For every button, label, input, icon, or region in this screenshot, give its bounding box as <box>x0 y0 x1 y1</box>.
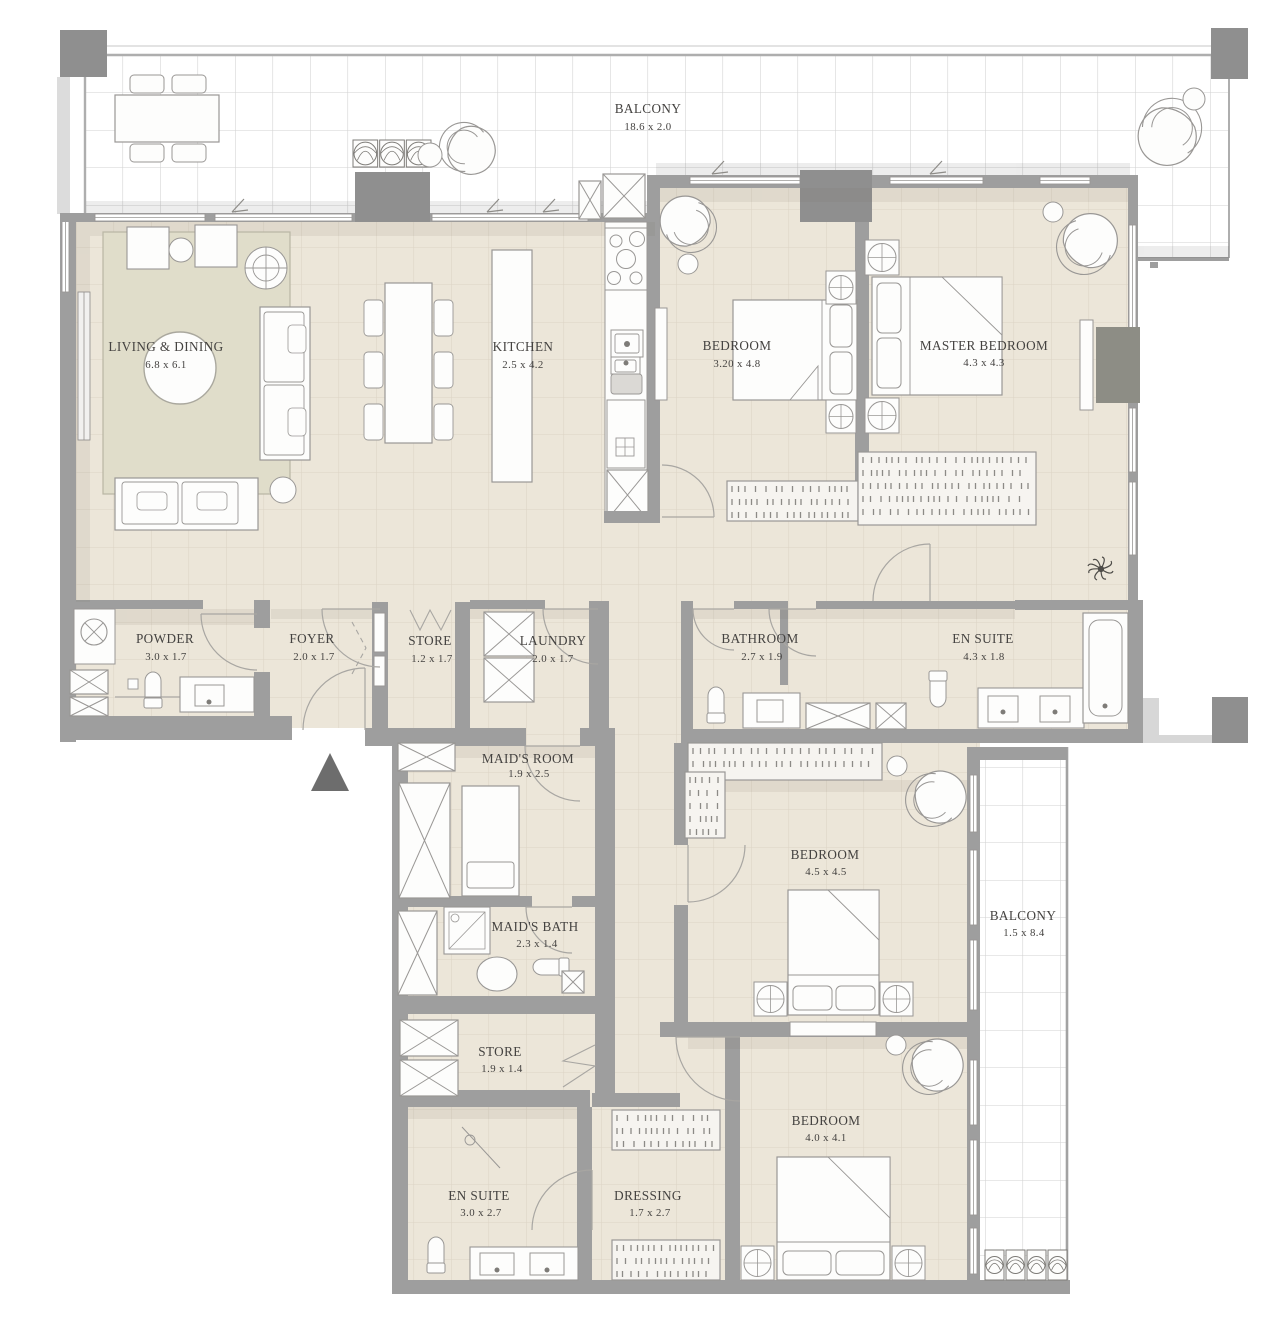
svg-text:4.0 x 4.1: 4.0 x 4.1 <box>805 1132 846 1144</box>
svg-text:STORE: STORE <box>478 1044 522 1059</box>
svg-text:4.3 x 1.8: 4.3 x 1.8 <box>963 651 1004 663</box>
svg-text:EN SUITE: EN SUITE <box>952 631 1013 646</box>
svg-text:POWDER: POWDER <box>136 631 194 646</box>
svg-text:1.9 x 1.4: 1.9 x 1.4 <box>481 1063 523 1075</box>
svg-text:6.8 x 6.1: 6.8 x 6.1 <box>145 359 186 371</box>
svg-text:MAID'S BATH: MAID'S BATH <box>491 919 578 934</box>
svg-text:2.5 x 4.2: 2.5 x 4.2 <box>502 359 543 371</box>
svg-text:2.3 x 1.4: 2.3 x 1.4 <box>516 938 558 950</box>
svg-text:BEDROOM: BEDROOM <box>703 338 772 353</box>
svg-text:BEDROOM: BEDROOM <box>792 1113 861 1128</box>
svg-text:BALCONY: BALCONY <box>990 908 1057 923</box>
svg-text:3.0 x 1.7: 3.0 x 1.7 <box>145 651 187 663</box>
svg-text:2.7 x 1.9: 2.7 x 1.9 <box>741 651 782 663</box>
svg-text:LIVING & DINING: LIVING & DINING <box>108 339 223 354</box>
svg-text:EN SUITE: EN SUITE <box>448 1188 509 1203</box>
svg-text:1.2 x 1.7: 1.2 x 1.7 <box>411 653 453 665</box>
svg-text:MASTER BEDROOM: MASTER BEDROOM <box>920 338 1048 353</box>
svg-text:2.0 x 1.7: 2.0 x 1.7 <box>293 651 335 663</box>
svg-text:4.3 x 4.3: 4.3 x 4.3 <box>963 357 1004 369</box>
svg-text:1.9 x 2.5: 1.9 x 2.5 <box>508 768 549 780</box>
svg-text:1.5 x 8.4: 1.5 x 8.4 <box>1003 927 1045 939</box>
svg-text:STORE: STORE <box>408 633 452 648</box>
svg-text:2.0 x 1.7: 2.0 x 1.7 <box>532 653 574 665</box>
svg-text:18.6 x 2.0: 18.6 x 2.0 <box>624 121 671 133</box>
svg-text:1.7 x 2.7: 1.7 x 2.7 <box>629 1207 671 1219</box>
svg-text:3.0 x 2.7: 3.0 x 2.7 <box>460 1207 502 1219</box>
svg-text:BATHROOM: BATHROOM <box>721 631 798 646</box>
svg-text:BALCONY: BALCONY <box>615 101 682 116</box>
svg-text:FOYER: FOYER <box>289 631 334 646</box>
svg-text:MAID'S ROOM: MAID'S ROOM <box>482 751 574 766</box>
svg-text:DRESSING: DRESSING <box>614 1188 682 1203</box>
svg-text:BEDROOM: BEDROOM <box>791 847 860 862</box>
svg-text:3.20 x 4.8: 3.20 x 4.8 <box>713 358 760 370</box>
svg-text:LAUNDRY: LAUNDRY <box>520 633 587 648</box>
svg-text:4.5 x 4.5: 4.5 x 4.5 <box>805 866 846 878</box>
svg-text:KITCHEN: KITCHEN <box>493 339 554 354</box>
